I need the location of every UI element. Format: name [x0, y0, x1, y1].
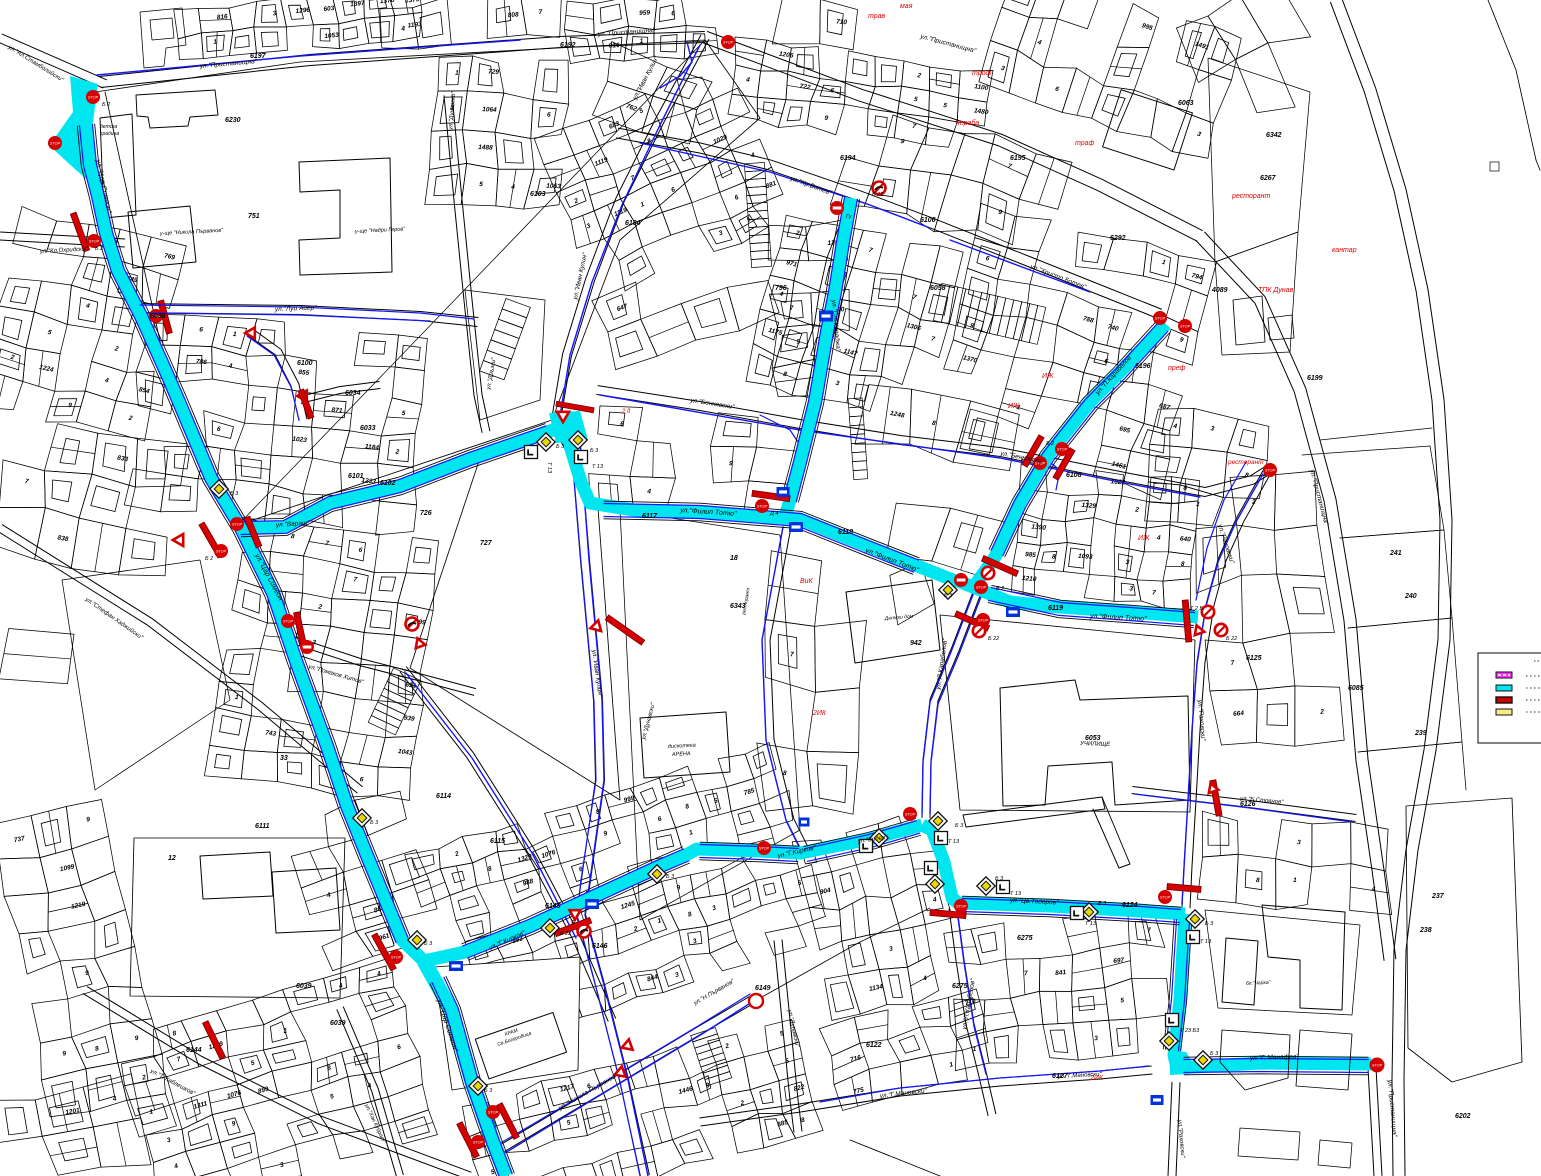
- svg-text:727: 727: [480, 540, 493, 547]
- svg-text:6230: 6230: [225, 117, 241, 124]
- svg-text:Т 13: Т 13: [948, 839, 960, 845]
- svg-text:816: 816: [216, 13, 228, 21]
- svg-text:ресторант: ресторант: [1227, 459, 1264, 466]
- svg-text:Т 13: Т 13: [592, 464, 604, 470]
- svg-text:Б 3: Б 3: [370, 820, 379, 826]
- svg-text:6117: 6117: [642, 513, 658, 520]
- svg-text:STOP: STOP: [976, 586, 987, 590]
- svg-text:6149: 6149: [755, 985, 771, 992]
- svg-text:237: 237: [1431, 893, 1445, 900]
- svg-text:ресторант: ресторант: [1231, 193, 1270, 200]
- svg-text:STOP: STOP: [88, 96, 99, 100]
- svg-text:2ИК: 2ИК: [1089, 1075, 1104, 1082]
- svg-text:6033: 6033: [360, 425, 376, 432]
- svg-text:6118: 6118: [838, 529, 853, 536]
- svg-text:STOP: STOP: [1372, 1064, 1383, 1068]
- svg-text:871: 871: [331, 407, 343, 415]
- svg-text:кантар: кантар: [1332, 247, 1357, 254]
- svg-text:АРЕНА: АРЕНА: [671, 751, 691, 758]
- svg-text:STOP: STOP: [216, 550, 227, 554]
- svg-text:697: 697: [1113, 957, 1125, 965]
- svg-text:726: 726: [420, 510, 432, 517]
- svg-text:ИЖ: ИЖ: [1042, 373, 1054, 380]
- svg-text:Б 3: Б 3: [590, 448, 599, 454]
- svg-text:Б 3: Б 3: [230, 491, 239, 497]
- svg-text:1093: 1093: [1078, 553, 1093, 561]
- svg-text:6034: 6034: [345, 390, 361, 397]
- svg-text:6124: 6124: [1122, 902, 1138, 909]
- svg-text:Т 2 Б: Т 2 Б: [1190, 606, 1203, 612]
- svg-text:Т 13: Т 13: [1200, 939, 1212, 945]
- svg-text:18: 18: [730, 555, 738, 562]
- svg-text:6197: 6197: [250, 53, 267, 60]
- svg-text:808: 808: [508, 11, 520, 19]
- svg-text:Б 2: Б 2: [205, 556, 213, 562]
- svg-text:1184: 1184: [365, 443, 380, 451]
- svg-text:Т 13: Т 13: [1010, 891, 1022, 897]
- svg-text:664: 664: [1233, 710, 1245, 718]
- svg-text:STOP: STOP: [1057, 448, 1068, 452]
- svg-text:6102: 6102: [380, 480, 396, 487]
- svg-text:33: 33: [280, 755, 288, 762]
- svg-text:ВиК: ВиК: [800, 578, 814, 585]
- svg-text:1064: 1064: [482, 106, 497, 114]
- svg-text:Т 13: Т 13: [546, 462, 552, 474]
- svg-text:6106: 6106: [920, 217, 936, 224]
- svg-text:855: 855: [298, 369, 310, 377]
- svg-text:1488: 1488: [478, 144, 493, 152]
- svg-text:7: 7: [790, 651, 794, 658]
- svg-text:6194: 6194: [840, 155, 856, 162]
- svg-text:6267: 6267: [1260, 175, 1277, 182]
- svg-text:Б 3: Б 3: [666, 874, 675, 880]
- svg-text:STOP: STOP: [1155, 317, 1166, 321]
- svg-text:6098: 6098: [150, 313, 166, 320]
- svg-text:бл."Чайка": бл."Чайка": [1246, 979, 1271, 987]
- svg-text:2 д: 2 д: [621, 409, 631, 415]
- svg-text:6145: 6145: [545, 903, 561, 910]
- svg-text:троф: троф: [972, 70, 992, 77]
- svg-text:6111: 6111: [255, 823, 270, 830]
- svg-text:6202: 6202: [1455, 1113, 1471, 1120]
- svg-text:Б 2: Б 2: [1046, 441, 1054, 447]
- svg-text:6108: 6108: [1066, 472, 1082, 479]
- svg-text:STOP: STOP: [283, 620, 294, 624]
- svg-text:STOP: STOP: [89, 240, 100, 244]
- svg-text:640: 640: [1180, 536, 1192, 544]
- svg-text:мая: мая: [900, 3, 913, 10]
- svg-text:6199: 6199: [1307, 375, 1323, 382]
- svg-text:6039: 6039: [296, 983, 312, 990]
- svg-text:985: 985: [1025, 551, 1037, 559]
- svg-text:6115: 6115: [490, 838, 505, 845]
- svg-text:Б 22: Б 22: [988, 636, 999, 642]
- svg-text:Б 3: Б 3: [484, 1088, 493, 1094]
- svg-text:239: 239: [1414, 730, 1427, 737]
- svg-text:Б 22: Б 22: [1226, 636, 1237, 642]
- svg-text:4: 4: [400, 25, 405, 32]
- svg-text:6342: 6342: [1266, 132, 1282, 139]
- svg-text:6144: 6144: [186, 1047, 202, 1054]
- svg-text:STOP: STOP: [1265, 469, 1276, 473]
- svg-text:Б 2: Б 2: [996, 586, 1004, 592]
- svg-text:6275: 6275: [952, 983, 968, 990]
- svg-text:Б 3: Б 3: [944, 593, 953, 599]
- svg-text:Б 2: Б 2: [102, 102, 110, 108]
- svg-text:710: 710: [836, 18, 848, 26]
- svg-text:959: 959: [639, 9, 651, 17]
- svg-text:трав: трав: [868, 13, 886, 20]
- svg-text:6119: 6119: [1048, 605, 1063, 612]
- svg-text:STOP: STOP: [759, 847, 770, 851]
- svg-text:градина: градина: [100, 131, 119, 137]
- svg-text:6192: 6192: [560, 42, 576, 49]
- svg-text:6126: 6126: [1240, 801, 1256, 808]
- svg-text:751: 751: [248, 213, 260, 220]
- svg-text:STOP: STOP: [232, 523, 243, 527]
- svg-text:240: 240: [1404, 593, 1417, 600]
- svg-text:6196: 6196: [1135, 363, 1151, 370]
- svg-text:STOP: STOP: [1160, 896, 1171, 900]
- svg-text:STOP: STOP: [978, 619, 989, 623]
- svg-text:6292: 6292: [1110, 235, 1126, 242]
- svg-text:Б 3: Б 3: [955, 823, 964, 829]
- svg-text:Б 22: Б 22: [872, 192, 883, 198]
- svg-text:6275: 6275: [1017, 935, 1033, 942]
- svg-text:942: 942: [910, 640, 922, 647]
- svg-text:Б 22: Б 22: [560, 931, 571, 937]
- svg-text:841: 841: [1055, 969, 1067, 977]
- svg-text:траф: траф: [1075, 140, 1095, 147]
- svg-text:Чераба: Чераба: [955, 119, 979, 127]
- svg-text:STOP: STOP: [50, 142, 61, 146]
- svg-text:6343: 6343: [730, 603, 746, 610]
- svg-text:238: 238: [1419, 927, 1432, 934]
- svg-text:1390: 1390: [1031, 524, 1046, 532]
- svg-text:Б 3: Б 3: [424, 941, 433, 947]
- svg-text:ИЖ: ИЖ: [1008, 403, 1020, 410]
- svg-text:Б 3: Б 3: [1098, 901, 1107, 907]
- svg-text:6103: 6103: [530, 191, 546, 198]
- svg-text:Д 4: Д 4: [769, 511, 778, 517]
- svg-text:6058: 6058: [930, 285, 946, 292]
- svg-text:Т 13: Т 13: [1085, 921, 1097, 927]
- svg-text:STOP: STOP: [905, 813, 916, 817]
- svg-text:Б 2: Б 2: [95, 246, 103, 252]
- svg-text:Б 3: Б 3: [995, 876, 1004, 882]
- svg-text:6085: 6085: [1348, 685, 1364, 692]
- svg-text:1210: 1210: [1022, 575, 1037, 583]
- svg-text:STOP: STOP: [488, 1111, 499, 1115]
- svg-text:STOP: STOP: [1180, 325, 1191, 329]
- svg-text:Б 3: Б 3: [556, 444, 565, 450]
- svg-text:786: 786: [196, 358, 208, 366]
- svg-text:12: 12: [168, 855, 176, 862]
- svg-text:6039: 6039: [330, 1020, 346, 1027]
- svg-text:STOP: STOP: [956, 905, 967, 909]
- svg-text:6104: 6104: [625, 220, 641, 227]
- svg-text:Т 23 Б3: Т 23 Б3: [1180, 1028, 1200, 1034]
- svg-text:STOP: STOP: [391, 956, 402, 960]
- svg-text:2ИК: 2ИК: [812, 710, 827, 717]
- svg-text:преф: преф: [1168, 365, 1186, 372]
- svg-text:6114: 6114: [436, 793, 451, 800]
- svg-text:729: 729: [488, 68, 500, 76]
- svg-text:ул."Луи Айер": ул."Луи Айер": [274, 304, 318, 314]
- svg-text:6125: 6125: [1246, 655, 1262, 662]
- svg-text:6100: 6100: [297, 360, 313, 367]
- svg-text:УЧИЛИЩЕ: УЧИЛИЩЕ: [1079, 741, 1111, 748]
- svg-text:4089: 4089: [1211, 287, 1228, 294]
- svg-text:ТПК Дунав: ТПК Дунав: [1258, 287, 1294, 294]
- svg-text:241: 241: [1389, 550, 1402, 557]
- svg-text:STOP: STOP: [473, 1141, 484, 1145]
- svg-text:1329: 1329: [1081, 502, 1096, 510]
- svg-text:796: 796: [775, 285, 787, 292]
- svg-text:6053: 6053: [1085, 735, 1101, 742]
- svg-text:детска: детска: [100, 124, 117, 130]
- svg-text:603: 603: [323, 5, 335, 13]
- svg-text:6122: 6122: [866, 1042, 882, 1049]
- svg-text:4: 4: [510, 184, 515, 191]
- svg-text:ИЖ: ИЖ: [1138, 535, 1150, 542]
- svg-text:6195: 6195: [1010, 155, 1026, 162]
- svg-text:6063: 6063: [1178, 100, 1194, 107]
- svg-text:STOP: STOP: [757, 505, 768, 509]
- svg-text:6146: 6146: [592, 943, 608, 950]
- svg-text:STOP: STOP: [723, 41, 734, 45]
- svg-text:6101: 6101: [348, 473, 364, 480]
- svg-text:Б 3: Б 3: [1210, 1051, 1219, 1057]
- svg-text:6127: 6127: [1052, 1073, 1069, 1080]
